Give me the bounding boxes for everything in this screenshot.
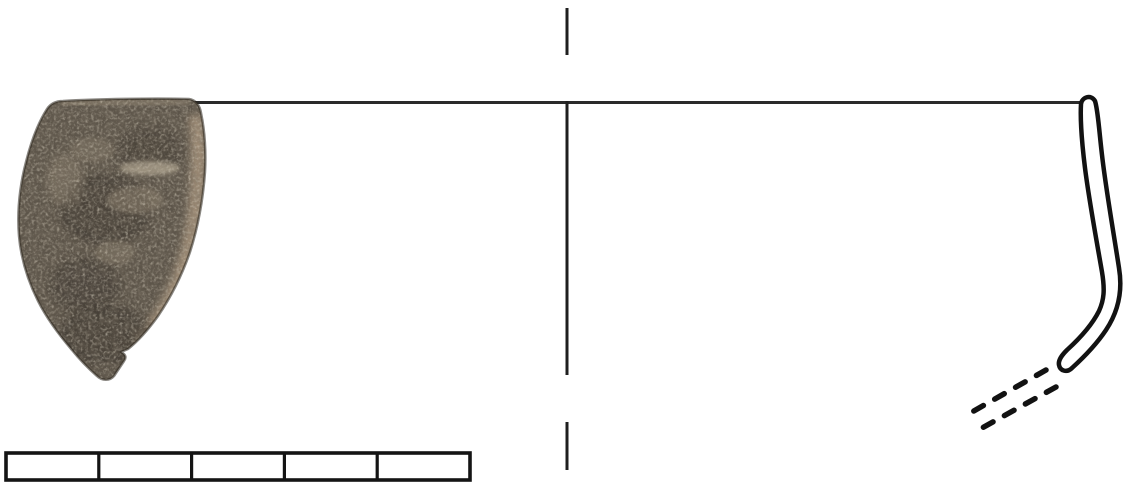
- sherd-grain-dark: [12, 92, 212, 388]
- pottery-figure: [0, 0, 1140, 487]
- scale-bar-frame: [6, 453, 470, 480]
- figure-canvas: [0, 0, 1140, 487]
- rim-profile-outline: [1059, 97, 1121, 371]
- scale-bar: [6, 453, 470, 480]
- sherd-photo: [12, 92, 212, 388]
- projection-dash-upper: [972, 370, 1046, 412]
- projection-dash-lower: [982, 387, 1056, 428]
- wall-projection-dashes: [972, 370, 1056, 428]
